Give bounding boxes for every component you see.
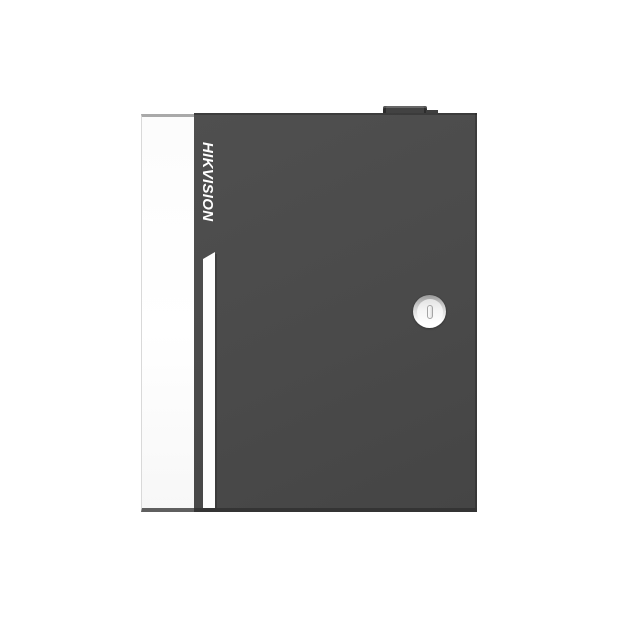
- brand-logo: HIKVISION: [199, 142, 215, 228]
- cam-lock: [413, 295, 446, 328]
- cabinet-side-panel: [141, 114, 194, 512]
- keyhole-slot-icon: [427, 305, 433, 319]
- cam-lock-face: [417, 299, 443, 325]
- access-control-cabinet: HIKVISION: [141, 106, 477, 512]
- door-accent-stripe-shadow: [215, 254, 217, 508]
- cabinet-door: HIKVISION: [194, 113, 477, 512]
- door-accent-stripe: [203, 252, 215, 508]
- product-photo-scene: HIKVISION: [0, 0, 620, 620]
